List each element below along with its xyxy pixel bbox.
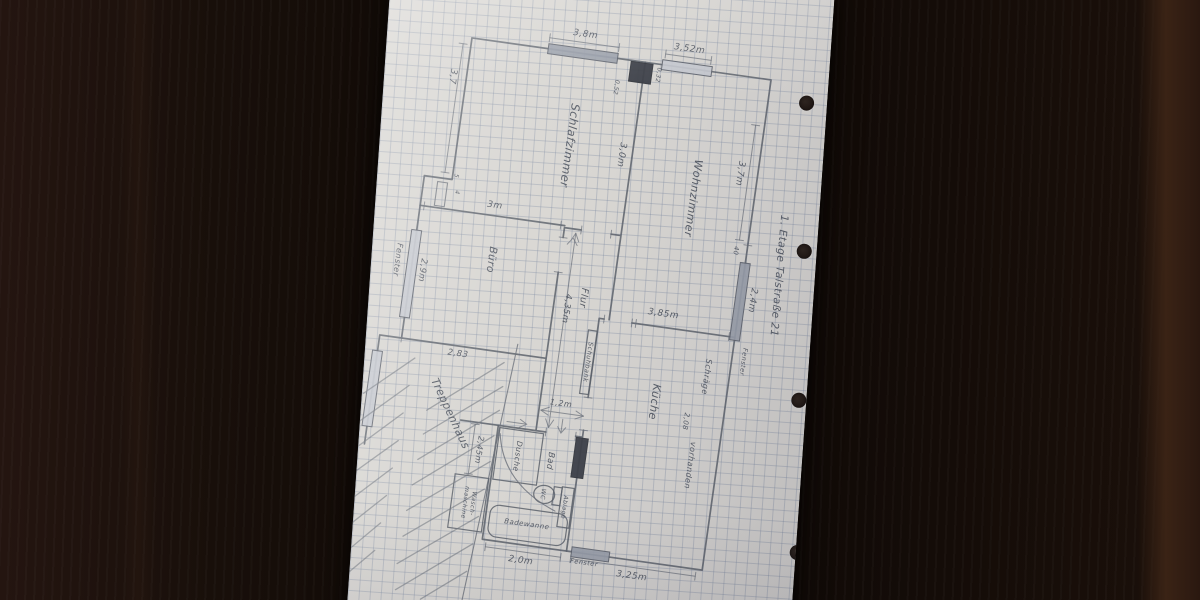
label-wohnzimmer: Wohnzimmer [681,159,705,239]
floorplan-drawing: 1. Etage Talstraße 21 Schlafzimmer Wohnz… [345,0,836,600]
note-schraege-2: vorhanden [682,441,698,489]
dim-wohn-breite: 3,7m [733,160,746,186]
label-schlafzimmer: Schlafzimmer [557,103,583,190]
graph-paper-sheet: 1. Etage Talstraße 21 Schlafzimmer Wohnz… [345,0,836,600]
sheet-title: 1. Etage Talstraße 21 [768,214,791,337]
dim-buero-tiefe: 2,83 [447,348,469,361]
dim-bad-innen: 2,45m [473,435,486,464]
dim-flur-laenge: 4,35m [559,293,573,324]
dim-eck-a: 5 [452,173,460,178]
dim-schlaf-fenster: 3,8m [572,28,598,41]
dim-eck-b: 4 [453,190,461,195]
dim-wohn-fenster: 3,52m [673,42,705,56]
wood-grain-streak [120,0,156,600]
dim-kueche-fenster: 2,4m [745,287,758,313]
label-bad: Bad [544,451,556,470]
label-buero: Büro [484,246,500,274]
window-label-top: Fenster [738,347,750,377]
photo-of-floorplan-sketch: 1. Etage Talstraße 21 Schlafzimmer Wohnz… [0,0,1200,600]
window-treppenhaus [362,350,382,427]
dim-kamin-b: 0,52 [611,79,620,95]
note-schraege-1: Schräge [700,358,714,395]
dim-wohn-kueche-wand: 3,85m [647,307,679,321]
window-schlafzimmer [548,44,619,64]
wood-table-edge-band [1138,0,1200,600]
punch-hole [791,392,807,408]
label-dusche: Dusche [511,440,524,472]
window-wohnzimmer [661,60,712,77]
label-wc: WC [538,488,547,500]
window-label-buero: Fenster [391,242,405,277]
label-flur: Flur [576,287,590,309]
note-hoehe: 2,08 [681,412,691,431]
label-badewanne: Badewanne [504,517,550,531]
dim-bad-breite: 2,0m [508,554,534,567]
dim-kueche-breite: 3,25m [615,569,647,583]
dim-wohn-tuer: 40 [731,246,740,256]
dim-flur-breite: 1,2m [549,397,573,409]
label-kueche: Küche [646,383,664,421]
corner-nook-detail [434,182,447,207]
chimney-block [629,61,654,84]
dim-buero-wand: 3m [486,200,503,212]
dim-buero-fenster: 2,9m [416,258,429,283]
dim-schlaf-breite: 3,7 [446,68,458,85]
dim-kamin-a: 0,32 [654,67,663,83]
bad-wall-block [571,437,588,478]
dim-wohn-schlaf-wand: 3,0m [614,142,627,168]
